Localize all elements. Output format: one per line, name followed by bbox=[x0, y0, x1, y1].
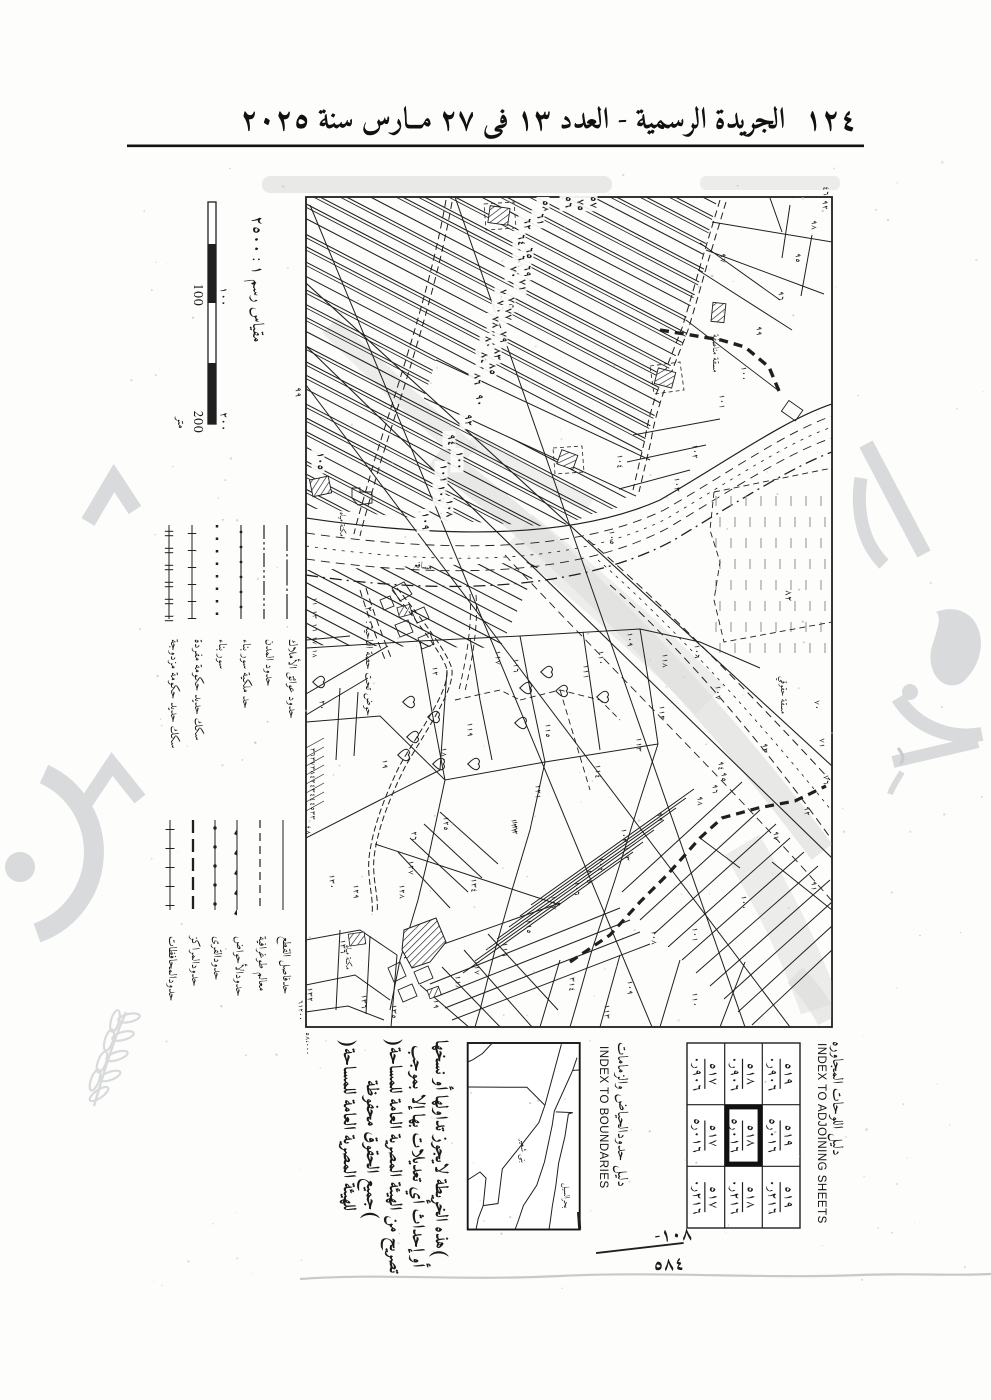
svg-text:INDEX TO ADJOINING SHEETS: INDEX TO ADJOINING SHEETS bbox=[815, 1043, 827, 1224]
svg-text:INDEX TO BOUNDARIES: INDEX TO BOUNDARIES bbox=[597, 1046, 609, 1189]
